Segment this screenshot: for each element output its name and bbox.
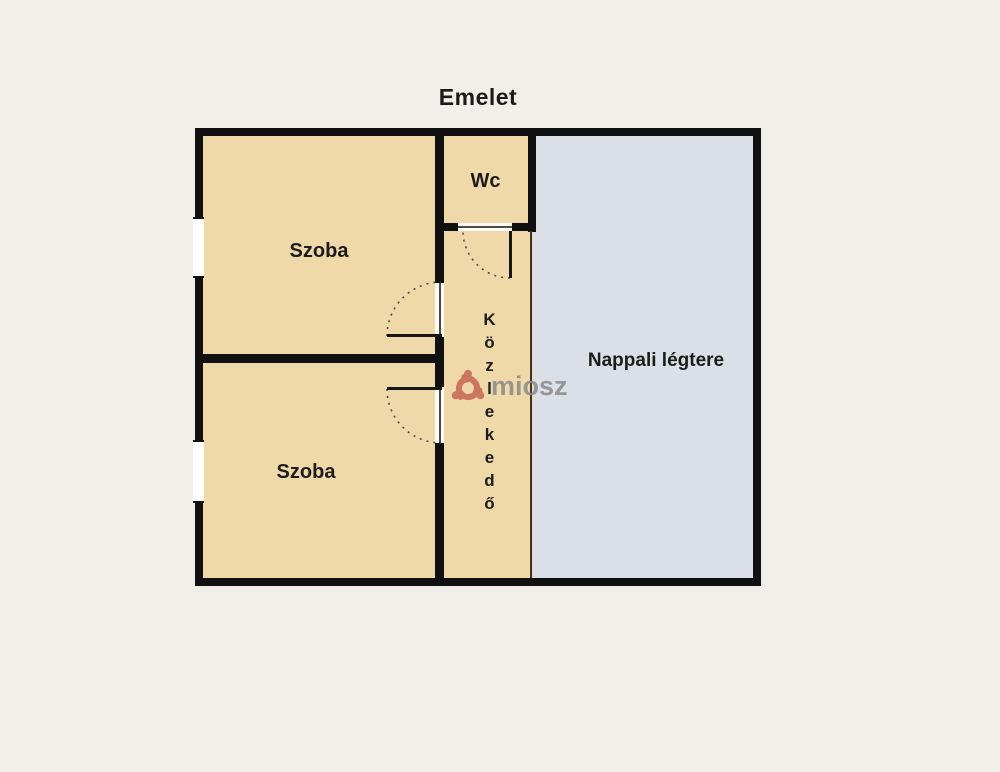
- floor-plan: Szoba Szoba Wc Nappali légtere Közlekedő…: [195, 128, 761, 586]
- room-label-szoba-top: Szoba: [203, 240, 435, 263]
- door-jamb-szoba-bottom: [439, 387, 441, 443]
- door-leaf-wc: [509, 231, 512, 278]
- door-leaf-szoba-top: [387, 334, 442, 337]
- room-label-nappali: Nappali légtere: [561, 350, 751, 372]
- room-label-wc: Wc: [443, 170, 528, 193]
- door-jamb-szoba-top: [439, 283, 441, 337]
- door-swing-arc-wc: [463, 231, 510, 278]
- door-swing-arc-szoba-top: [387, 282, 441, 336]
- door-jamb-wc: [458, 226, 512, 228]
- miosz-watermark-text: miosz: [491, 373, 568, 400]
- page-title: Emelet: [195, 84, 761, 111]
- door-leaf-szoba-bottom: [387, 387, 442, 390]
- room-label-kozlekedo: Közlekedő: [476, 310, 500, 515]
- room-label-szoba-bottom: Szoba: [203, 461, 409, 484]
- door-swing-arc-szoba-bottom: [387, 389, 441, 443]
